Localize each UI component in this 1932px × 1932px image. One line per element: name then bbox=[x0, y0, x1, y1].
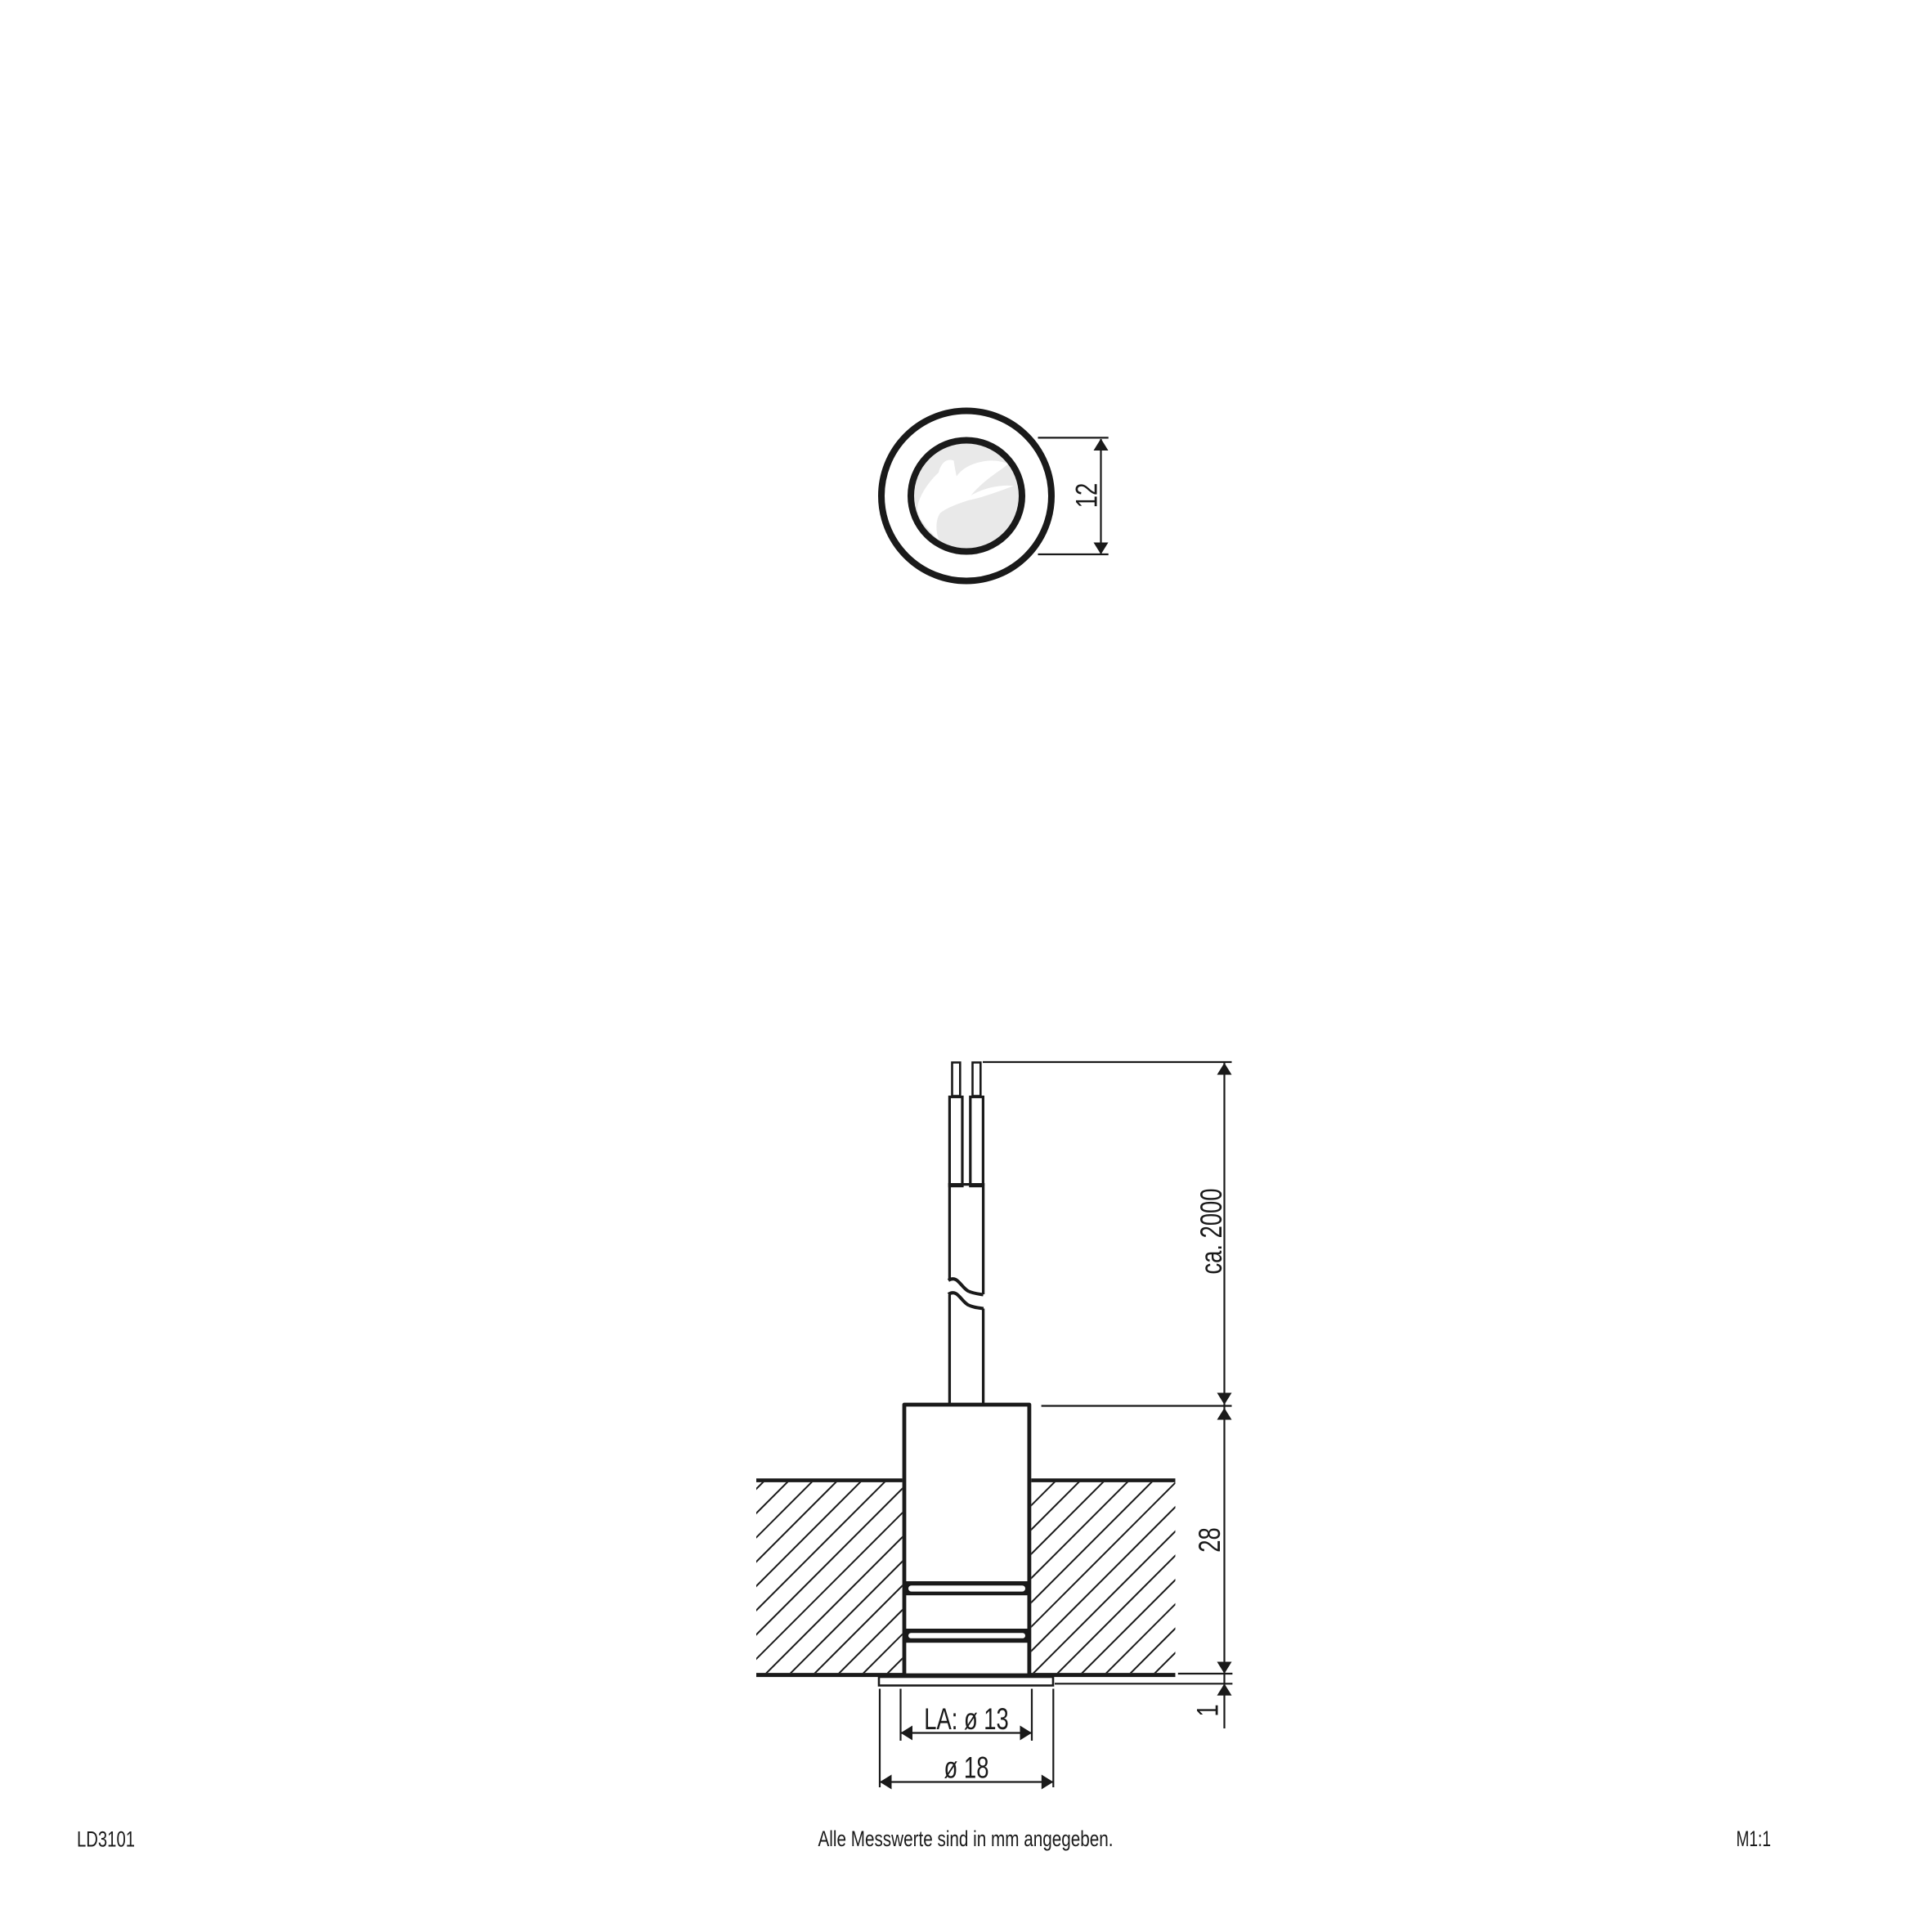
svg-text:M1:1: M1:1 bbox=[1737, 1827, 1772, 1851]
svg-text:ca. 2000: ca. 2000 bbox=[1195, 1189, 1228, 1275]
svg-text:ø 18: ø 18 bbox=[944, 1751, 989, 1785]
svg-text:Alle Messwerte sind in mm ange: Alle Messwerte sind in mm angegeben. bbox=[818, 1827, 1114, 1851]
svg-text:1: 1 bbox=[1191, 1704, 1225, 1716]
svg-text:LD3101: LD3101 bbox=[77, 1827, 135, 1852]
svg-text:LA: ø 13: LA: ø 13 bbox=[924, 1702, 1009, 1736]
svg-text:28: 28 bbox=[1193, 1527, 1226, 1553]
svg-text:12: 12 bbox=[1070, 483, 1104, 509]
